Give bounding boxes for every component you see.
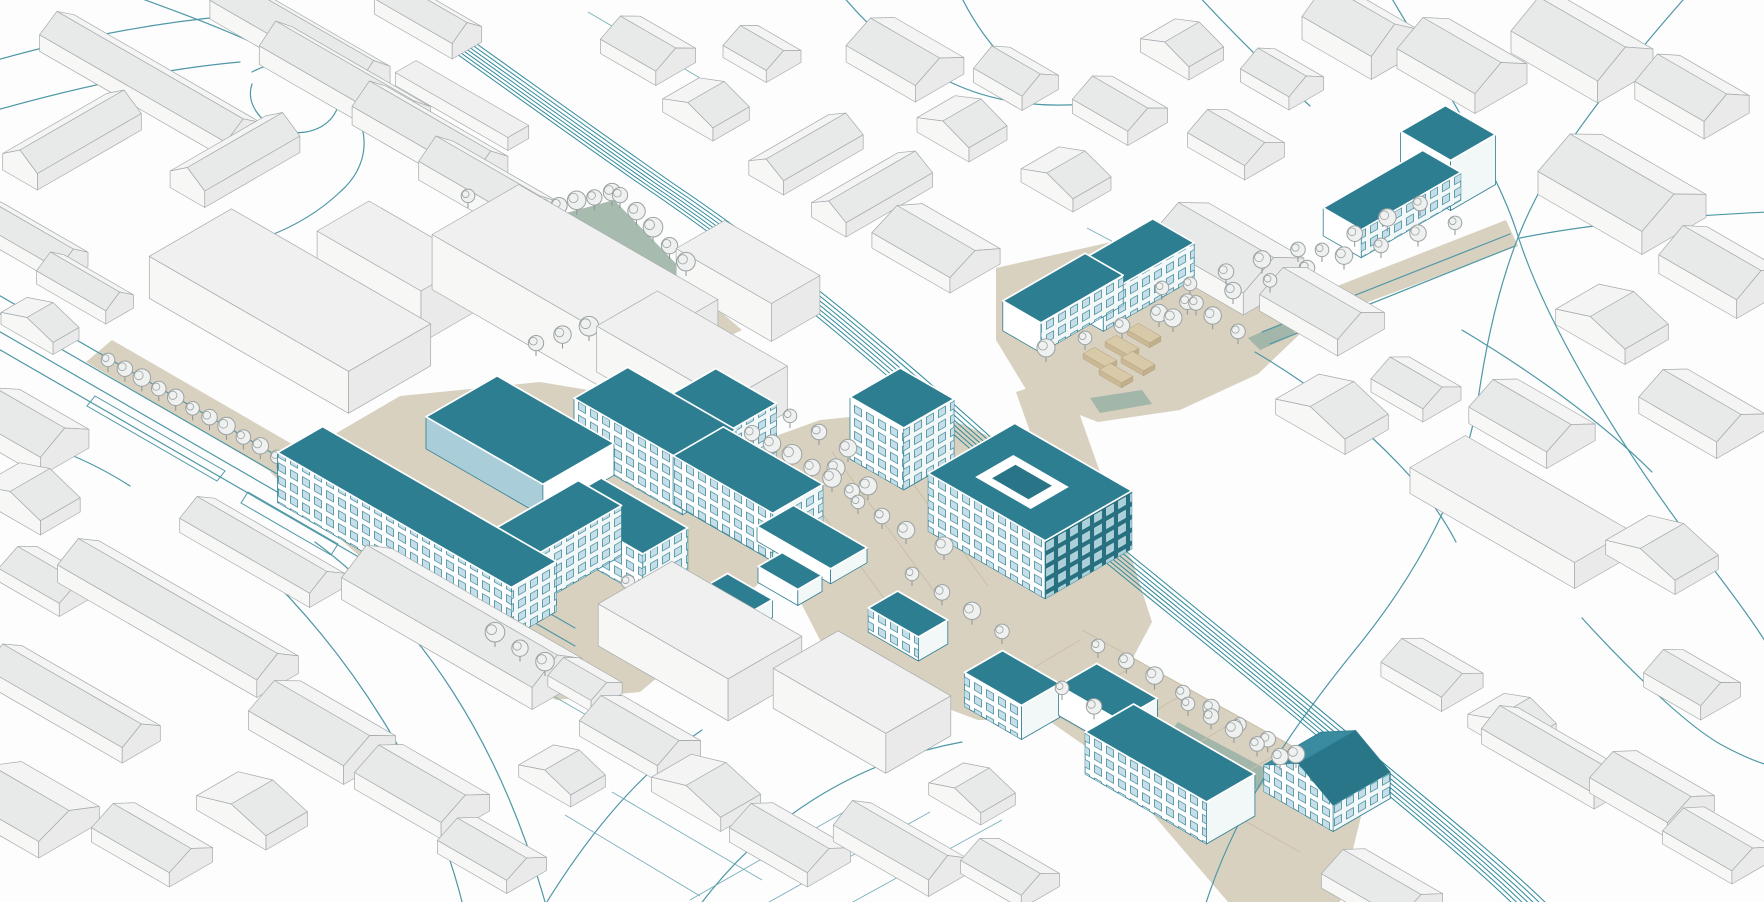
tree-canopy-detail — [1289, 748, 1298, 757]
tree-canopy-detail — [765, 437, 774, 446]
tree-canopy-detail — [841, 442, 850, 451]
tree-canopy-detail — [935, 587, 943, 595]
tree-canopy-detail — [1219, 266, 1227, 274]
tree-canopy-detail — [462, 191, 469, 198]
tree-canopy-detail — [1038, 341, 1047, 350]
tree-canopy-detail — [169, 391, 177, 399]
tree-canopy-detail — [936, 539, 945, 548]
tree-canopy-detail — [219, 419, 228, 428]
tree-canopy-detail — [537, 655, 546, 664]
tree-canopy-detail — [1227, 723, 1236, 732]
tree-canopy-detail — [588, 192, 596, 200]
tree-canopy-detail — [996, 626, 1003, 633]
tree-canopy-detail — [899, 524, 908, 533]
tree-canopy-detail — [1292, 244, 1299, 251]
tree-canopy-detail — [1380, 211, 1389, 220]
tree-canopy-detail — [581, 319, 591, 329]
tree-canopy-detail — [1079, 333, 1086, 340]
tree-canopy-detail — [1273, 750, 1281, 758]
tree-canopy-detail — [1348, 228, 1356, 236]
tree-canopy-detail — [906, 569, 913, 576]
tree-canopy-detail — [1414, 198, 1421, 205]
tree-canopy-detail — [1182, 699, 1189, 706]
tree-canopy-detail — [1316, 245, 1323, 252]
tree-canopy-detail — [529, 337, 537, 345]
tree-canopy-detail — [118, 363, 126, 371]
tree-canopy-detail — [645, 220, 655, 230]
tree-canopy-detail — [555, 328, 564, 337]
tree-canopy-detail — [605, 186, 614, 195]
tree-canopy-detail — [187, 403, 194, 410]
tree-canopy-detail — [805, 461, 813, 469]
tree-canopy-detail — [1264, 275, 1271, 282]
tree-canopy-detail — [1184, 279, 1191, 286]
tree-canopy-detail — [860, 479, 869, 488]
tree-canopy-detail — [812, 426, 820, 434]
tree-canopy-detail — [1177, 687, 1184, 694]
tree-canopy-detail — [1115, 320, 1123, 328]
tree-canopy-detail — [1165, 311, 1174, 320]
tree-canopy-detail — [1087, 701, 1095, 709]
tree-canopy-detail — [1251, 738, 1258, 745]
tree-canopy-detail — [784, 411, 791, 418]
tree-canopy-detail — [253, 440, 261, 448]
tree-canopy-detail — [1092, 641, 1099, 648]
tree-canopy-detail — [1375, 240, 1382, 247]
tree-canopy-detail — [569, 193, 578, 202]
tree-canopy-detail — [1255, 253, 1264, 262]
tree-canopy-detail — [622, 577, 629, 584]
tree-canopy-detail — [965, 604, 974, 613]
tree-canopy-detail — [237, 432, 244, 439]
tree-canopy-detail — [845, 485, 853, 493]
tree-canopy-detail — [875, 510, 883, 518]
tree-canopy-detail — [663, 239, 671, 247]
tree-canopy-detail — [1226, 284, 1234, 292]
masterplan-illustration — [0, 0, 1764, 902]
tree-canopy-detail — [1156, 283, 1163, 290]
tree-canopy-detail — [824, 471, 833, 480]
masterplan-canvas — [0, 0, 1764, 902]
tree-canopy-detail — [1120, 655, 1128, 663]
tree-canopy-detail — [613, 189, 621, 197]
tree-canopy-detail — [153, 383, 160, 390]
tree-canopy-detail — [1056, 683, 1063, 690]
tree-canopy-detail — [1232, 326, 1239, 333]
tree-canopy-detail — [513, 642, 521, 650]
tree-canopy-detail — [1205, 309, 1214, 318]
tree-canopy-detail — [203, 411, 211, 419]
tree-canopy-detail — [629, 205, 638, 214]
tree-canopy-detail — [1147, 669, 1156, 678]
tree-canopy-detail — [745, 427, 753, 435]
tree-canopy-detail — [678, 255, 687, 264]
tree-canopy-detail — [1190, 297, 1197, 304]
tree-canopy-detail — [487, 625, 497, 635]
tree-canopy-detail — [852, 497, 859, 504]
tree-canopy-detail — [1204, 711, 1212, 719]
tree-canopy-detail — [102, 355, 109, 362]
tree-canopy-detail — [784, 447, 794, 457]
tree-canopy-detail — [1337, 249, 1346, 258]
tree-canopy-detail — [1152, 307, 1161, 316]
tree-canopy-detail — [1449, 218, 1456, 225]
tree-canopy-detail — [1411, 227, 1419, 235]
tree-canopy-detail — [134, 371, 143, 380]
tree-canopy-detail — [1181, 296, 1189, 304]
